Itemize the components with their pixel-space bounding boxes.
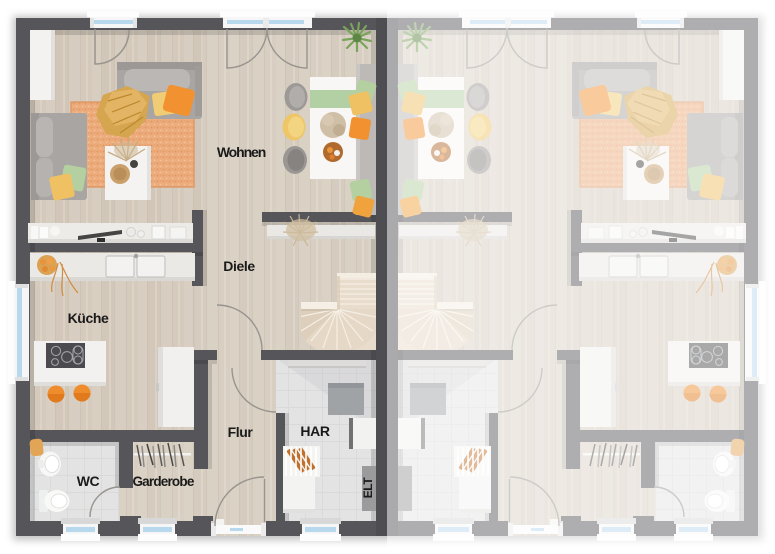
svg-text:Flur: Flur <box>228 424 254 440</box>
svg-text:Diele: Diele <box>223 258 255 274</box>
svg-text:HAR: HAR <box>300 423 329 439</box>
svg-text:WC: WC <box>77 473 100 489</box>
svg-text:Wohnen: Wohnen <box>217 144 266 160</box>
svg-text:Küche: Küche <box>68 310 109 326</box>
svg-text:ELT: ELT <box>361 477 375 499</box>
svg-text:Garderobe: Garderobe <box>132 474 194 489</box>
